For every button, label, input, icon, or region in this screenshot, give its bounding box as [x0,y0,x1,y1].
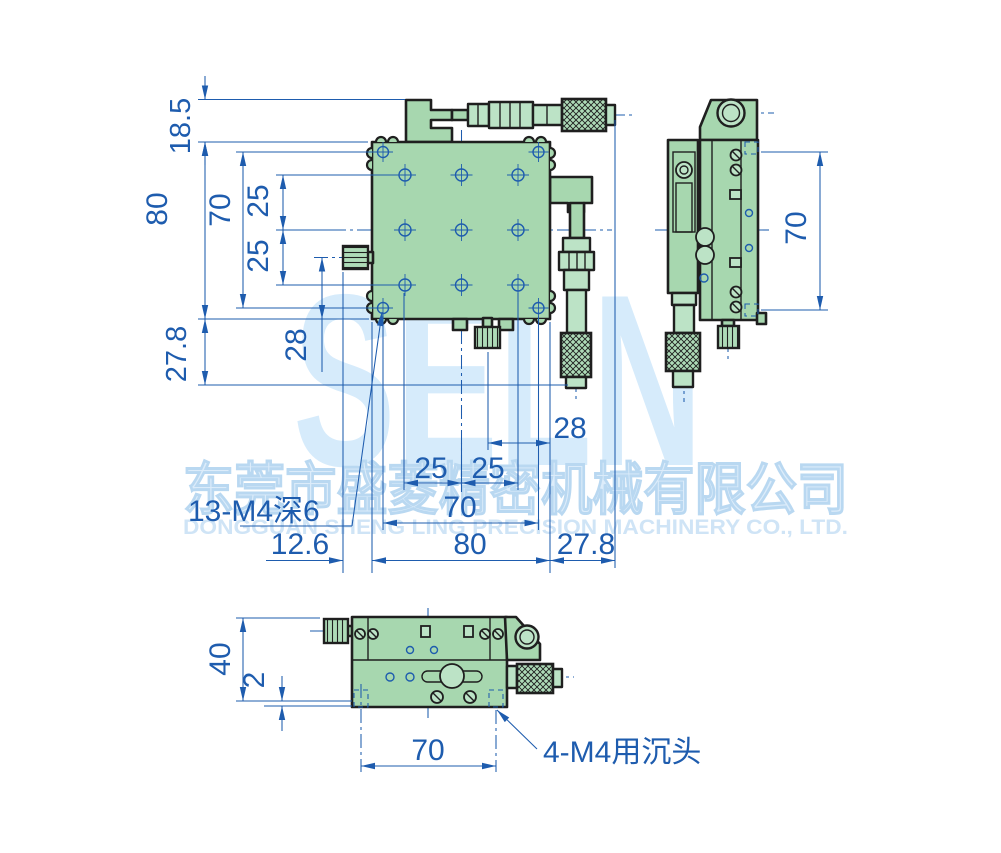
dim-80-h: 80 [453,528,486,561]
dim-40: 40 [204,642,237,675]
bottom-knob-shaft [483,318,492,327]
dim-12-6-h: 12.6 [271,528,329,561]
dim-27-8-h: 27.8 [557,528,615,561]
dim-25-v2: 25 [242,239,275,272]
x-micrometer-sleeve [489,102,533,128]
dim-side-70: 70 [780,211,813,244]
gib-clip [730,258,741,267]
dim-2: 2 [238,672,271,689]
side-bottom-knob [718,320,739,348]
dim-70-h: 70 [443,491,476,524]
dim-27-8-v: 27.8 [161,326,193,382]
bottom-micrometer-thimble [517,664,553,693]
label-counterbore: 4-M4用沉头 [543,736,701,769]
y-micrometer-thimble [561,333,591,377]
dim-bottom-70: 70 [411,734,444,767]
x-micrometer-bracket [406,100,452,142]
dim-25-h2: 25 [471,452,504,485]
x-micrometer-spindle [452,110,468,120]
clamp-screw [696,246,714,264]
dim-28-v: 28 [280,328,313,361]
side-dimensions: 70 [761,152,828,310]
dim-80-v: 80 [141,192,174,225]
center-boss [440,664,464,688]
y-micrometer-thimble-base [564,270,589,290]
label-holes: 13-M4深6 [188,495,320,528]
bottom-micrometer-end-circle [516,626,539,649]
dim-18-5: 18.5 [165,98,197,154]
stage-drawing: SELN 东莞市盛菱精密机械有限公司 DONGGUAN SHENG LING P… [0,0,1001,853]
bottom-knob [475,327,500,348]
y-micrometer-cap [566,377,586,388]
y-micrometer-spindle [570,203,584,238]
side-micrometer-stem [674,305,694,333]
dim-28-h: 28 [553,412,586,445]
side-micrometer-end-circle [718,100,745,127]
left-knob [343,246,368,269]
bottom-micrometer-base [507,666,517,688]
dim-25-v1: 25 [242,184,275,217]
stage-body [367,137,555,324]
side-tab [757,313,766,324]
x-micrometer-cap [606,105,615,125]
x-micrometer-thimble [562,99,606,131]
gib-clip [730,190,741,199]
side-micrometer-cap [673,371,693,387]
clamp-screw [696,228,714,246]
gib-clip [464,626,473,637]
bottom-view-knob [324,619,348,643]
gib-clip [421,626,430,637]
bottom-micrometer-cap [553,669,562,687]
bottom-tab-left [453,319,467,330]
bottom-view: 40 2 70 4-M4用沉头 [204,608,701,772]
side-knob [718,326,739,348]
x-micrometer [406,99,615,142]
left-clamp-knob [343,246,373,269]
y-micrometer-locknut [563,238,590,252]
side-view: 70 [655,100,828,403]
dim-25-h1: 25 [414,452,447,485]
y-micrometer-stem [567,290,586,333]
dim-70-v: 70 [204,193,237,226]
side-micrometer-thimble [666,333,700,371]
drawing-page: SELN 东莞市盛菱精密机械有限公司 DONGGUAN SHENG LING P… [0,0,1001,853]
